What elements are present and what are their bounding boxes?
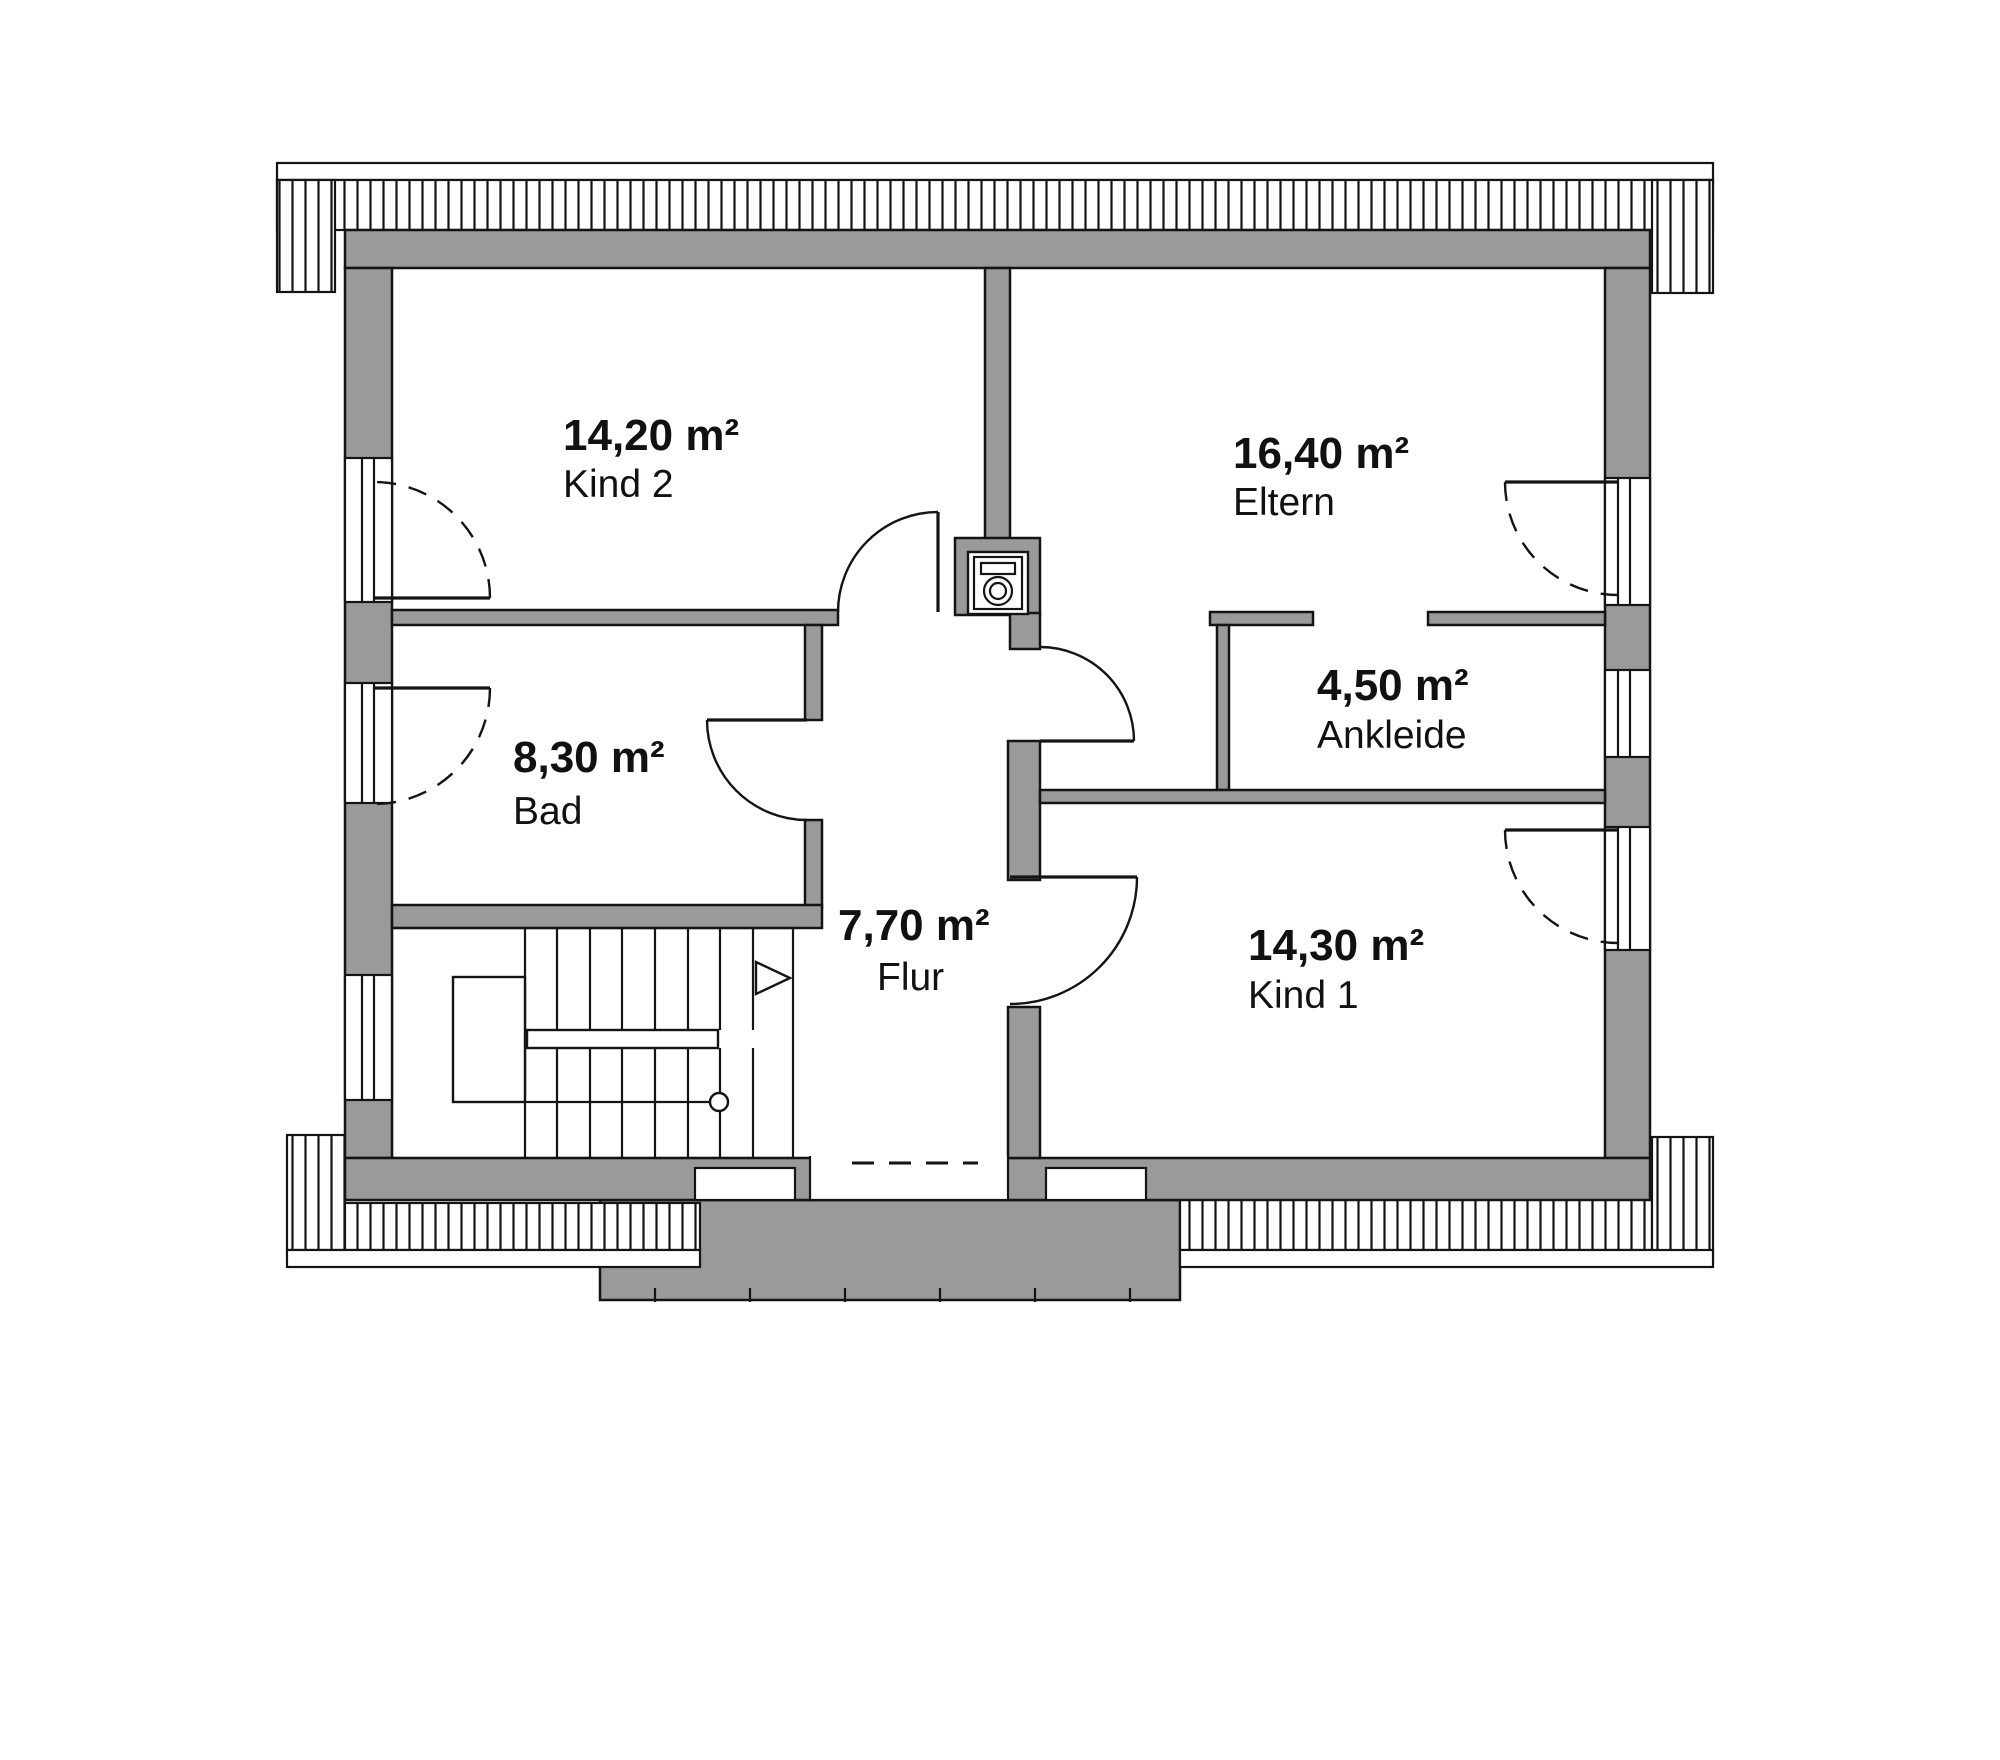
room-label-kind1: 14,30 m² Kind 1 <box>1248 921 1424 1017</box>
wall-flur-kind1 <box>1008 1007 1040 1158</box>
window-eltern <box>1505 478 1650 605</box>
door-eltern <box>1040 647 1134 741</box>
eaves-bottom-right-block <box>1652 1137 1713 1263</box>
window-kind1-casement-arc <box>1505 830 1618 943</box>
wall-kind1-top <box>1040 790 1605 803</box>
floor-plan-drawing: 14,20 m² Kind 2 16,40 m² Eltern 8,30 m² … <box>0 0 2000 1760</box>
room-name: Kind 1 <box>1248 974 1359 1017</box>
room-name: Eltern <box>1233 481 1335 524</box>
eaves-bottom-left-fascia <box>287 1250 700 1267</box>
door-kind1-arc <box>1010 877 1137 1004</box>
wall-ankleide-top-right-stub <box>1428 612 1605 625</box>
window-kind2 <box>345 458 490 602</box>
floor-plan-page: 14,20 m² Kind 2 16,40 m² Eltern 8,30 m² … <box>0 0 2000 1760</box>
eaves-bottom-left-hatch <box>345 1203 700 1250</box>
eaves-bottom-right-fascia <box>1180 1250 1713 1267</box>
room-name: Bad <box>513 790 582 833</box>
staircase-walkline-start-circle <box>710 1093 728 1111</box>
door-kind2 <box>838 512 938 612</box>
room-label-bad: 8,30 m² Bad <box>513 733 665 833</box>
eaves-top-fascia <box>277 163 1713 180</box>
room-label-eltern: 16,40 m² Eltern <box>1233 429 1409 524</box>
wall-bad-bottom <box>392 905 822 928</box>
door-bad <box>707 720 807 820</box>
wall-ankleide-top-left-stub <box>1210 612 1313 625</box>
wall-kind2-eltern-divider <box>985 268 1010 540</box>
staircase-direction-arrow-icon <box>756 962 790 994</box>
wall-ankleide-left <box>1217 625 1229 790</box>
staircase-handrail <box>527 1030 718 1048</box>
door-eltern-arc <box>1040 647 1134 741</box>
door-kind2-arc <box>838 512 938 612</box>
room-label-ankleide: 4,50 m² Ankleide <box>1317 661 1469 757</box>
room-area: 14,30 m² <box>1248 921 1424 970</box>
wall-bad-flur-upper <box>805 625 822 720</box>
room-label-flur: 7,70 m² Flur <box>838 901 990 999</box>
room-label-kind2: 14,20 m² Kind 2 <box>563 411 739 506</box>
room-name: Ankleide <box>1317 714 1467 757</box>
interior-walls <box>392 268 1605 1158</box>
window-eltern-casement-arc <box>1505 482 1618 595</box>
window-kind1 <box>1505 827 1650 950</box>
wall-bad-flur-lower <box>805 820 822 908</box>
room-name: Flur <box>877 956 944 999</box>
room-area: 14,20 m² <box>563 411 739 460</box>
eaves-bottom-right-hatch <box>1180 1198 1652 1250</box>
room-area: 16,40 m² <box>1233 429 1409 478</box>
room-area: 4,50 m² <box>1317 661 1469 710</box>
window-bottom-right <box>1046 1168 1146 1200</box>
eaves-top-left-block <box>277 180 335 292</box>
chimney-block-lower <box>1010 613 1040 649</box>
eaves-top-right-block <box>1652 180 1713 293</box>
eaves-top-hatch <box>277 180 1713 230</box>
window-ankleide <box>1605 670 1650 757</box>
staircase-void <box>453 977 525 1102</box>
staircase <box>392 928 793 1158</box>
door-kind1 <box>1010 877 1137 1004</box>
window-bottom-left <box>695 1168 795 1200</box>
wall-exterior-top <box>345 230 1650 268</box>
wall-flur-eltern <box>1008 741 1040 880</box>
window-bad <box>345 683 490 804</box>
washing-machine-niche <box>968 552 1028 614</box>
wall-kind2-bottom <box>392 610 838 625</box>
staircase-treads-upper <box>525 928 753 1030</box>
room-name: Kind 2 <box>563 463 674 506</box>
door-bad-arc <box>707 720 807 820</box>
room-area: 7,70 m² <box>838 901 990 950</box>
window-stairs <box>345 975 392 1100</box>
room-area: 8,30 m² <box>513 733 665 782</box>
eaves-bottom-left-block <box>287 1135 345 1250</box>
bottom-recess <box>810 1156 1008 1200</box>
